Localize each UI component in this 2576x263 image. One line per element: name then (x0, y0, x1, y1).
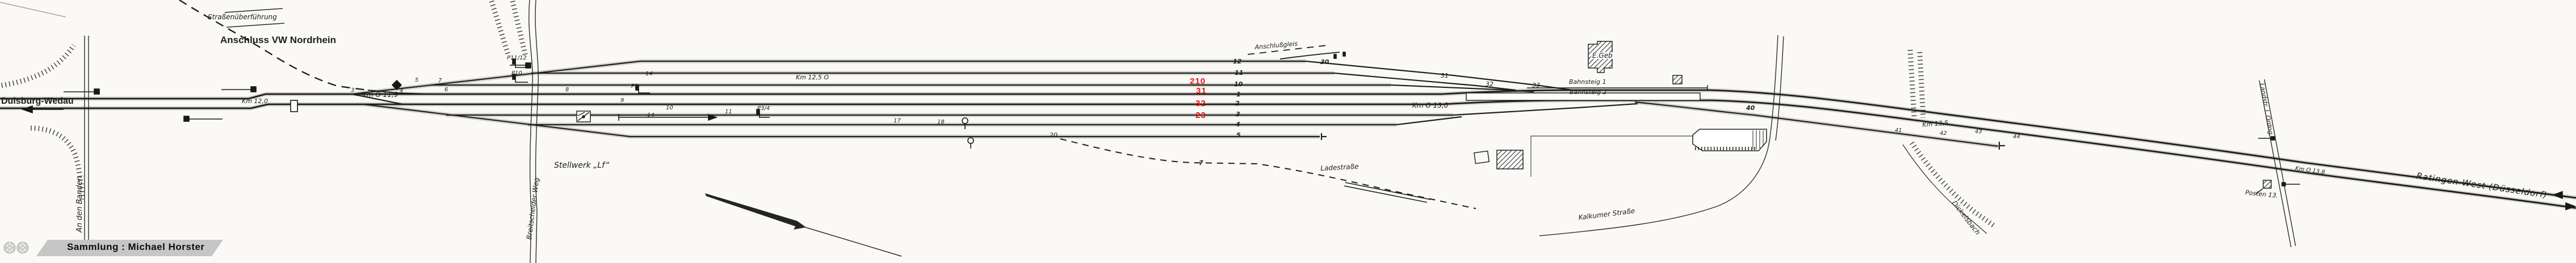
track-number-7: 7 (1199, 160, 1203, 166)
switch-42: 42 (1940, 131, 1947, 137)
red-track-number-31: 31 (1196, 87, 1207, 95)
station-building-label: E.Geb (1591, 52, 1614, 59)
goods-shed (1497, 150, 1523, 169)
ballast-shading (0, 61, 2576, 208)
track-number-30: 30 (1320, 59, 1329, 65)
switch-20: 20 (1050, 132, 1058, 138)
vw-connection-label: Anschluss VW Nordrhein (220, 35, 336, 45)
track-diagram-canvas (0, 0, 2576, 263)
red-track-number-32: 32 (1195, 99, 1206, 108)
switch-17: 17 (893, 118, 901, 124)
street-ladestrasse: Ladestraße (1320, 163, 1359, 172)
switch-7: 7 (438, 78, 442, 84)
km-post-12-0: Km 12,0 (242, 98, 268, 104)
track-number-3: 3 (1236, 111, 1240, 117)
platform-1-label: Bahnsteig 1 (1569, 79, 1606, 85)
switch-10: 10 (666, 105, 673, 111)
switch-32: 32 (1486, 81, 1493, 87)
platform-2-label: Bahnsteig 2 (1570, 89, 1607, 95)
station-left-label: Duisburg-Wedau (1, 97, 74, 106)
km-post-12-5: Km 12,5 O (796, 74, 829, 80)
switch-33: 33 (1532, 82, 1540, 88)
km-post-13-0: Km O 13,0 (1412, 102, 1448, 109)
track-number-12: 12 (1233, 58, 1241, 65)
switch-9: 9 (620, 98, 624, 104)
switch-31: 31 (1441, 73, 1449, 79)
waterway-dickelsbach (1903, 145, 1987, 234)
small-building (1474, 151, 1489, 163)
signal-p1: P1 (631, 84, 638, 90)
switch-41: 41 (1895, 128, 1902, 134)
track-number-40: 40 (1746, 105, 1755, 111)
switch-4: 4 (400, 88, 403, 94)
red-track-number-23: 23 (1195, 111, 1206, 120)
button-icon (4, 242, 28, 253)
signal-box-label: Stellwerk „Lf“ (554, 162, 609, 169)
track-number-2: 2 (1235, 100, 1240, 107)
track-plan-page: Straßenüberführung Anschluss VW Nordrhei… (0, 0, 2576, 263)
switch-14a: 14 (645, 71, 653, 77)
switch-3: 3 (351, 88, 354, 94)
switch-8: 8 (565, 87, 569, 93)
red-track-number-210: 210 (1190, 77, 1206, 86)
switch-44: 44 (2013, 134, 2020, 140)
switch-11: 11 (725, 109, 732, 115)
track-number-5: 5 (1236, 132, 1241, 138)
switch-5: 5 (415, 78, 418, 83)
track-number-4: 4 (1236, 121, 1240, 128)
signal-symbols (23, 52, 2575, 210)
switch-43: 43 (1975, 129, 1982, 135)
collection-credit: Sammlung : Michael Horster (67, 242, 205, 252)
roads (0, 0, 2296, 263)
hut (1673, 75, 1682, 84)
switch-14b: 14 (647, 113, 655, 118)
track-number-10: 10 (1234, 81, 1243, 87)
km-post-11-9: Km O 11,9 (362, 91, 398, 98)
signal-p11-12: P11/12 (507, 56, 527, 61)
track-number-1: 1 (1236, 91, 1241, 97)
posten-hut (2263, 180, 2271, 188)
track-number-11: 11 (1235, 70, 1243, 76)
street-an-den-banden: An den Banden (76, 176, 83, 233)
signal-p3-4: P3/4 (757, 106, 770, 112)
bridge-label: Straßenüberführung (208, 14, 277, 20)
switch-6: 6 (444, 87, 448, 93)
switch-18: 18 (937, 120, 945, 125)
annotation-arrow (705, 193, 901, 256)
signal-p10: P10 (511, 71, 522, 77)
